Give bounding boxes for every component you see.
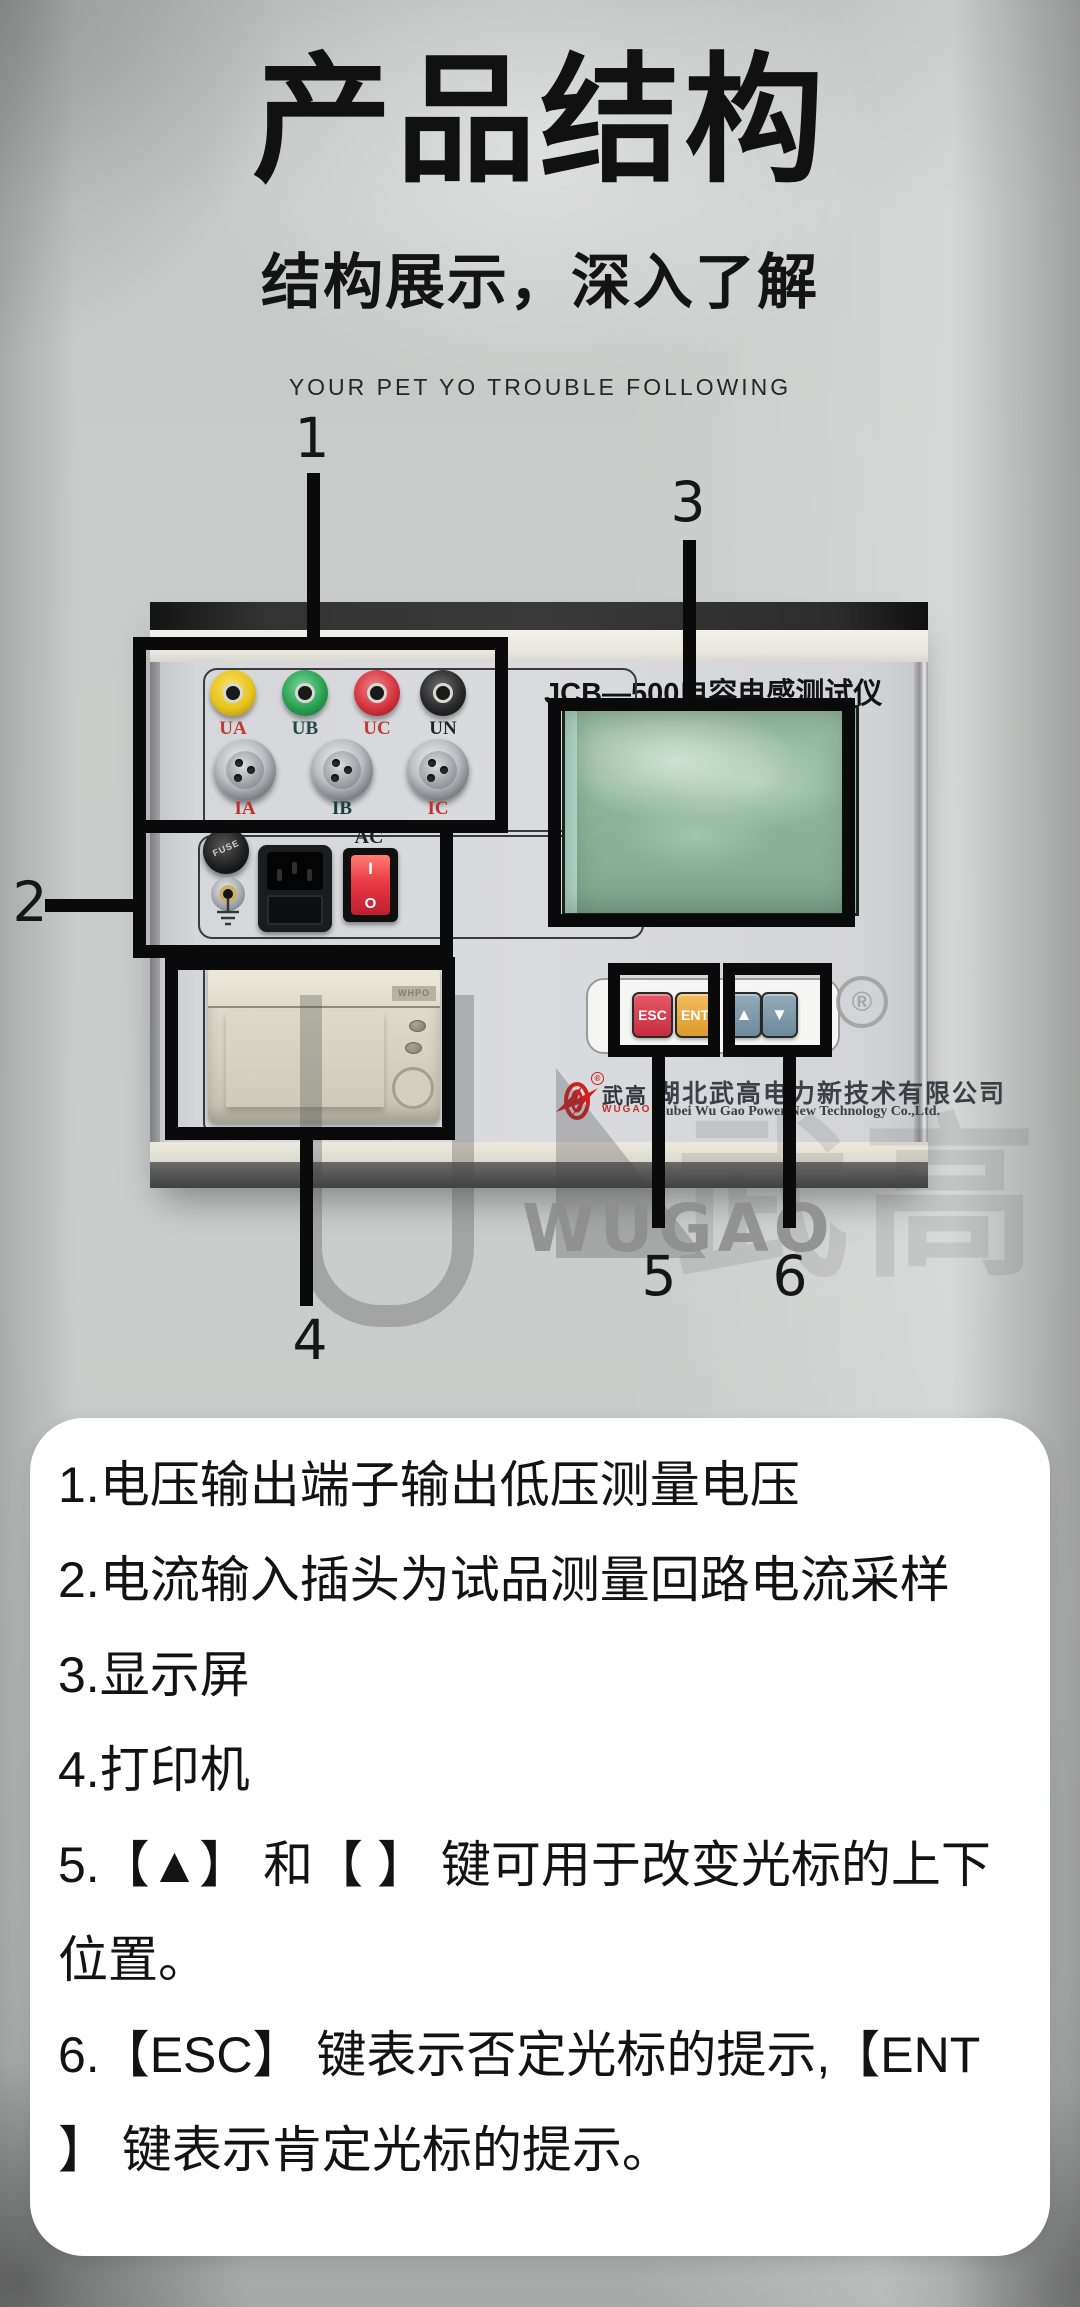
page-tagline: YOUR PET YO TROUBLE FOLLOWING: [0, 374, 1080, 401]
note-item-3: 3.显示屏: [58, 1628, 1020, 1723]
note-item-1: 1.电压输出端子输出低压测量电压: [58, 1438, 1020, 1533]
callout-number-6: 6: [768, 1244, 812, 1308]
callout-line-6: [783, 1055, 796, 1228]
callout-frame-voltage-terminals: [133, 637, 508, 833]
callout-number-4: 4: [288, 1308, 332, 1372]
registered-trademark-watermark: ®: [836, 976, 888, 1028]
callout-number-5: 5: [637, 1244, 681, 1308]
callout-frame-power-inputs: [133, 820, 453, 958]
note-item-5-cont: 位置。: [58, 1913, 1020, 2008]
callout-frame-printer: [165, 957, 455, 1140]
explanation-card: 1.电压输出端子输出低压测量电压 2.电流输入插头为试品测量回路电流采样 3.显…: [30, 1418, 1050, 2256]
note-item-2: 2.电流输入插头为试品测量回路电流采样: [58, 1533, 1020, 1628]
case-lid-edge: [150, 602, 928, 630]
page-subtitle: 结构展示，深入了解: [0, 234, 1080, 321]
note-item-6: 6.【ESC】 键表示否定光标的提示,【ENT: [58, 2008, 1020, 2103]
callout-frame-arrow-keys: [723, 963, 832, 1057]
callout-line-3: [683, 540, 696, 702]
callout-number-1: 1: [290, 406, 334, 470]
callout-line-4: [300, 1138, 313, 1306]
callout-frame-esc-ent-keys: [608, 963, 720, 1057]
callout-number-3: 3: [666, 470, 710, 534]
callout-frame-display: [548, 698, 855, 927]
note-item-5: 5.【▲】 和【 】 键可用于改变光标的上下: [58, 1818, 1020, 1913]
note-item-4: 4.打印机: [58, 1723, 1020, 1818]
page-title: 产品结构: [0, 44, 1080, 198]
callout-line-1: [307, 473, 320, 643]
note-item-6-cont: 】 键表示肯定光标的提示。: [58, 2103, 1020, 2198]
brand-watermark-cn: 武高: [675, 1058, 1049, 1311]
callout-line-5: [652, 1055, 665, 1228]
page: 产品结构 结构展示，深入了解 YOUR PET YO TROUBLE FOLLO…: [0, 0, 1080, 2307]
callout-line-2: [45, 899, 133, 912]
